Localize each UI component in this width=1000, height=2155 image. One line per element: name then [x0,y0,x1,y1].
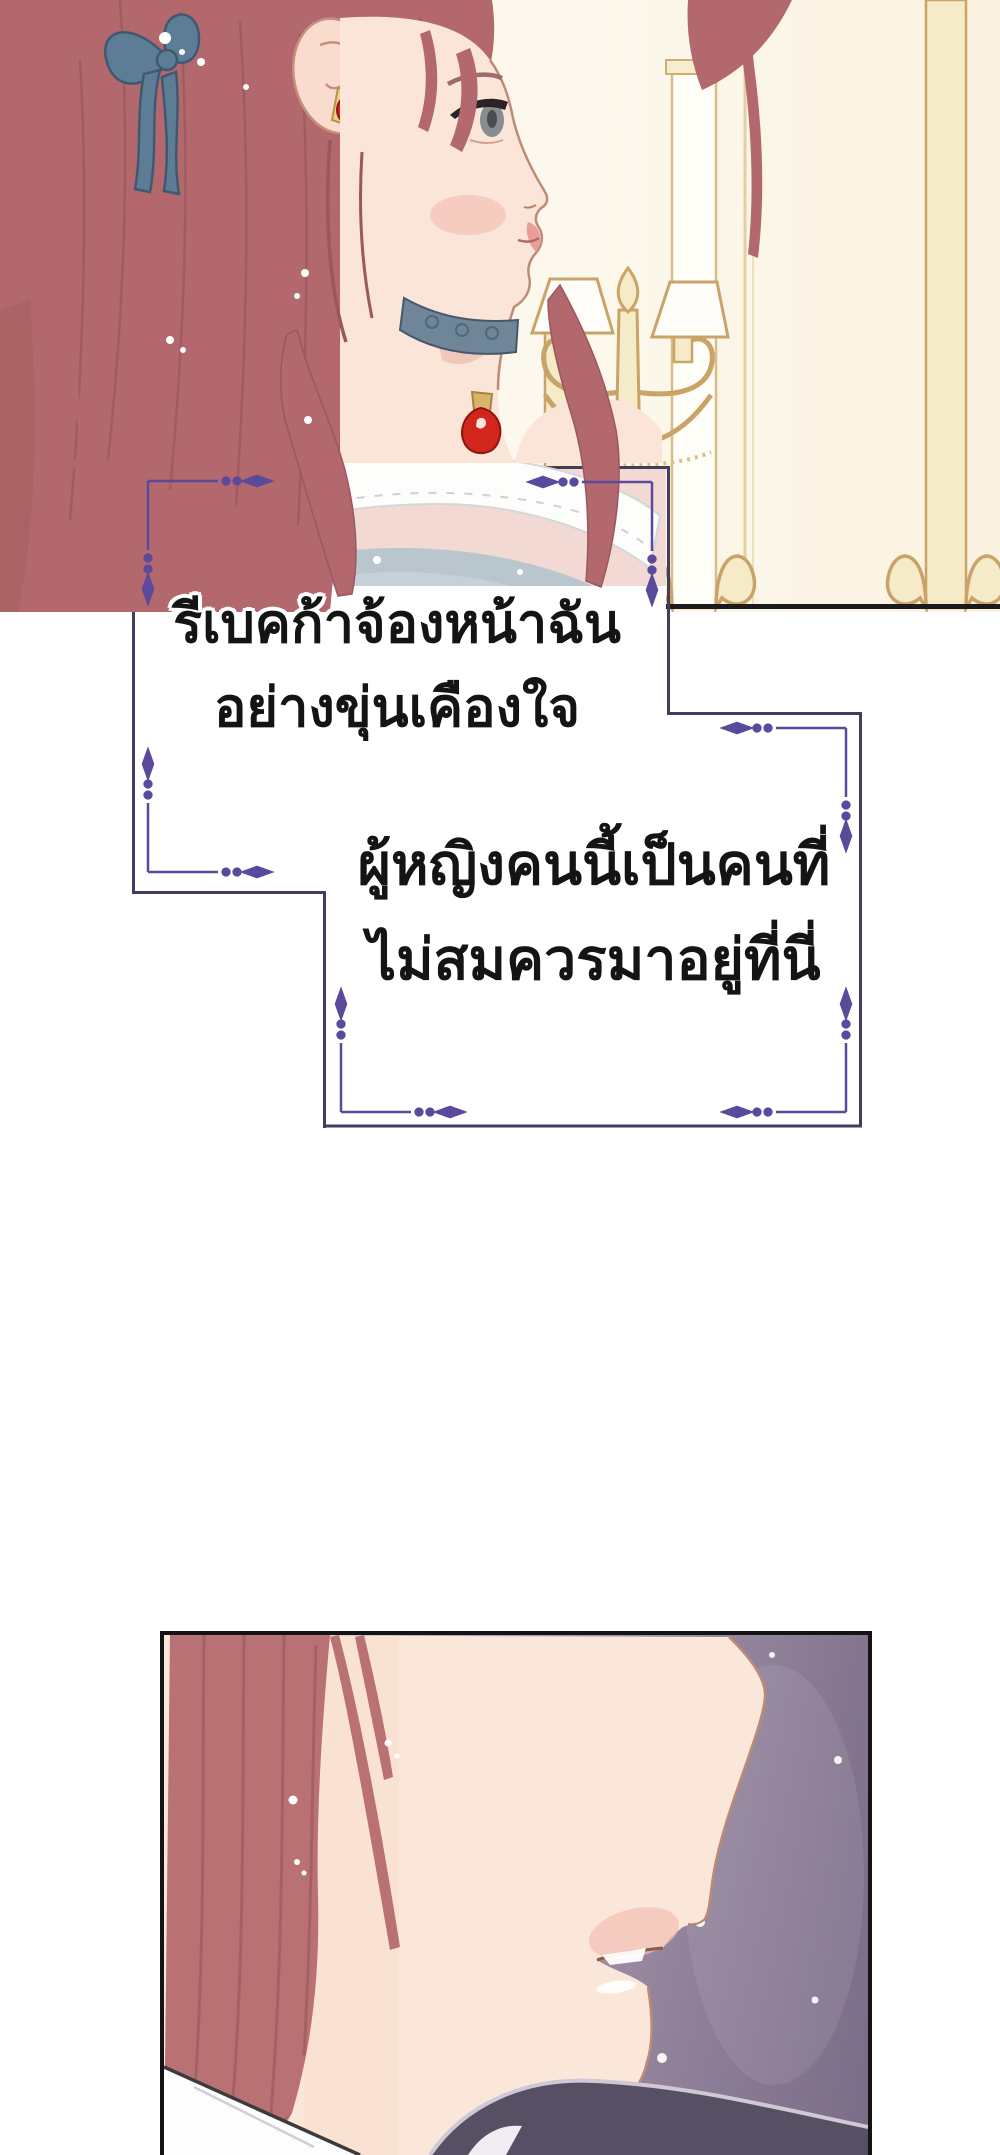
accent-b-bottom-left [336,990,464,1117]
narration-caption-1: รีเบคก้าจ้องหน้าฉัน อย่างขุ่นเคืองใจ [134,582,678,750]
narration-2-line-1: ผู้หญิงคนนี้เป็นคนที่ [336,818,852,913]
accent-b-bottom-right [723,990,851,1117]
accent-a-bottom-left [143,750,271,877]
narration-caption-2: ผู้หญิงคนนี้เป็นคนที่ ไม่สมควรมาอยู่ที่น… [336,818,852,1008]
bottom-panel [160,1631,872,2155]
bottom-panel-art [164,1635,868,2155]
narration-1-line-2: อย่างขุ่นเคืองใจ [134,666,660,750]
narration-2-line-2: ไม่สมควรมาอยู่ที่นี่ [336,913,852,1008]
narration-1-line-1: รีเบคก้าจ้องหน้าฉัน [134,582,660,666]
webtoon-page: รีเบคก้าจ้องหน้าฉัน อย่างขุ่นเคืองใจ ผู้… [0,0,1000,2155]
